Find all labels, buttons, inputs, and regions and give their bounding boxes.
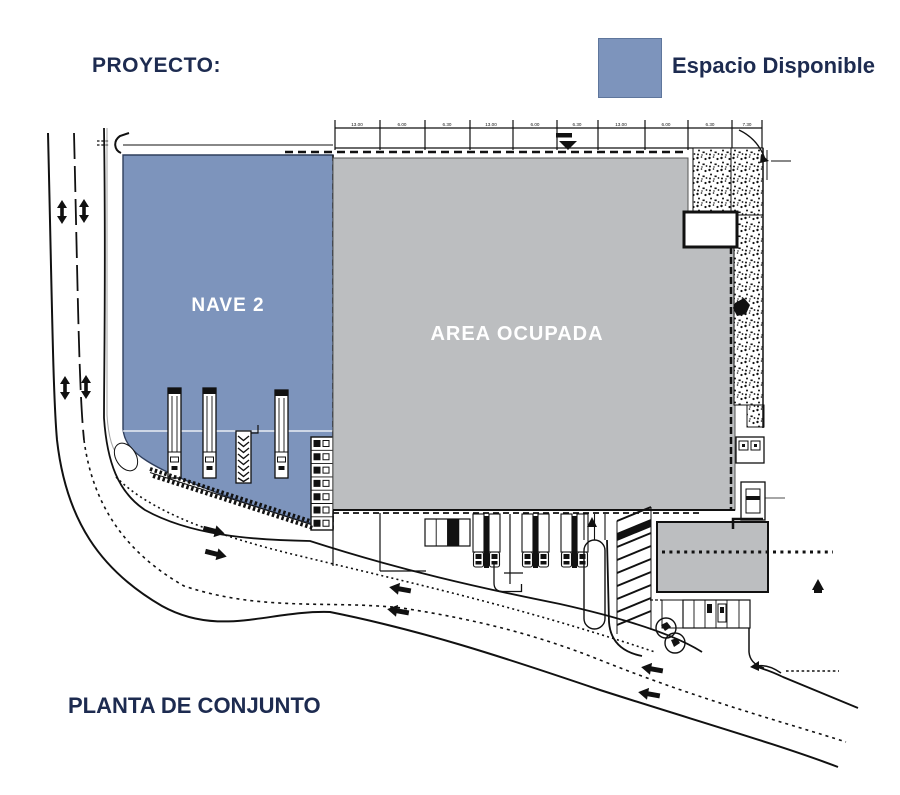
left-arrow-icon [640, 661, 664, 677]
dim-label: 6.00 [662, 122, 671, 127]
nave2-top-dimension [97, 133, 333, 153]
site-plan-drawing: NAVE 2 [0, 0, 900, 795]
dim-label: 13.00 [485, 122, 497, 127]
dim-label: 6.30 [706, 122, 715, 127]
dock-leveler-stack [311, 437, 333, 530]
truck-court [333, 513, 700, 629]
stall-exit-lane [749, 628, 764, 668]
dim-label: 6.00 [398, 122, 407, 127]
lower-gray-annex [657, 522, 768, 592]
site-plan-page: PROYECTO: Espacio Disponible PLANTA DE C… [0, 0, 900, 795]
two-way-arrow-icon [60, 376, 70, 400]
two-way-arrow-icon [81, 375, 91, 399]
angled-parking-band [617, 507, 651, 634]
stipple-block [693, 148, 763, 215]
nave2-label: NAVE 2 [191, 295, 264, 316]
dock-strip [168, 388, 181, 478]
two-way-arrow-icon [79, 199, 89, 223]
area-ocupada-label: AREA OCUPADA [430, 323, 603, 345]
left-arrow-icon [386, 603, 410, 619]
road-centerline-upper [74, 133, 84, 440]
stipple-small-box [747, 405, 764, 427]
two-way-arrow-icon [57, 200, 67, 224]
dock-strip [203, 388, 216, 478]
corner-hook-glyph [115, 133, 129, 153]
dock-strip [275, 390, 288, 478]
dim-label: 6.30 [573, 122, 582, 127]
dim-label: 6.00 [531, 122, 540, 127]
right-arrow-icon [204, 546, 228, 563]
right-arrow-icon [202, 523, 226, 540]
truck-lane-pair [522, 514, 549, 568]
left-arrow-icon [637, 686, 661, 702]
truck-lane-pair [473, 514, 500, 568]
dim-label: 13.00 [615, 122, 627, 127]
dim-label: 7.30 [743, 122, 752, 127]
right-notch-room [684, 212, 737, 247]
right-entry-edge [757, 667, 858, 708]
dim-label: 13.00 [351, 122, 363, 127]
dimension-labels: 13.00 6.00 6.30 13.00 6.00 6.30 13.00 6.… [351, 122, 752, 127]
stall-grid [425, 519, 470, 546]
nave2-available-area [123, 155, 333, 529]
valve-glyph [812, 579, 824, 593]
left-arrow-icon [388, 581, 412, 597]
dim-label: 6.30 [443, 122, 452, 127]
property-line [107, 128, 120, 458]
